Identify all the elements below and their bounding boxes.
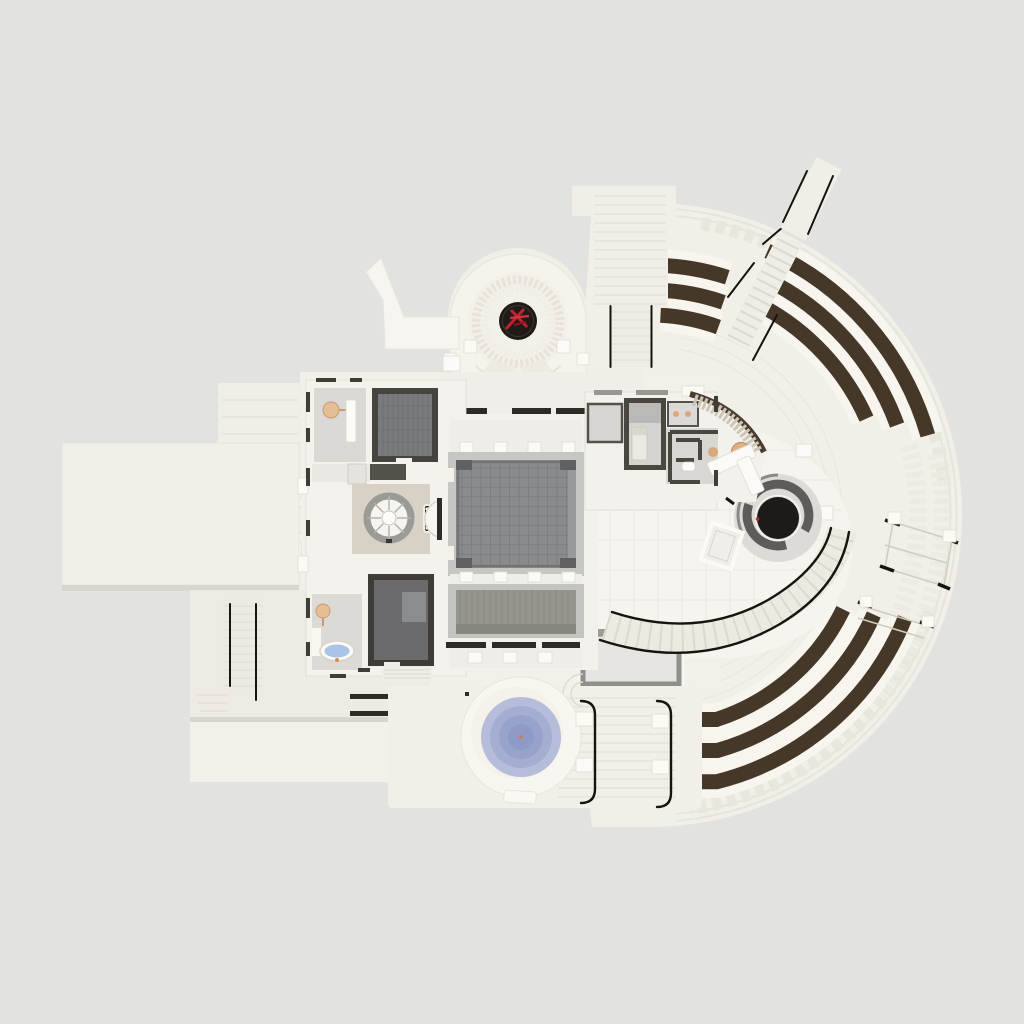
lower-terrace [190,717,394,782]
gym-room [372,388,438,464]
fire-pit-basin [757,497,799,539]
west-terrace [62,443,299,591]
pool-jet [519,735,523,739]
floorplan-canvas [0,0,1024,1024]
credenza [346,400,356,442]
floorplan-render [0,0,1024,1024]
spiral-staircase [352,484,430,554]
plaza-pedestal [796,444,812,457]
west-wing [298,380,466,682]
bench-arcs-mini [658,265,727,327]
closet [370,464,406,480]
central-halls [442,414,598,670]
great-hall-lower [448,584,584,638]
floor-dot [465,692,469,696]
basement-window-lintel [350,694,394,699]
wood-stool [316,604,330,618]
great-hall-upper [448,452,584,576]
red-sculpture-medallion [499,302,537,340]
bedroom [624,398,666,470]
bathroom [312,594,362,670]
ember-dot [756,517,760,521]
stool [708,447,718,457]
round-table [323,402,339,418]
lounge [314,388,366,462]
media-room [368,574,434,667]
dressing-room [588,404,622,442]
south-facade-lintels [446,642,580,648]
pool-step [504,790,537,804]
toilet [682,462,695,471]
